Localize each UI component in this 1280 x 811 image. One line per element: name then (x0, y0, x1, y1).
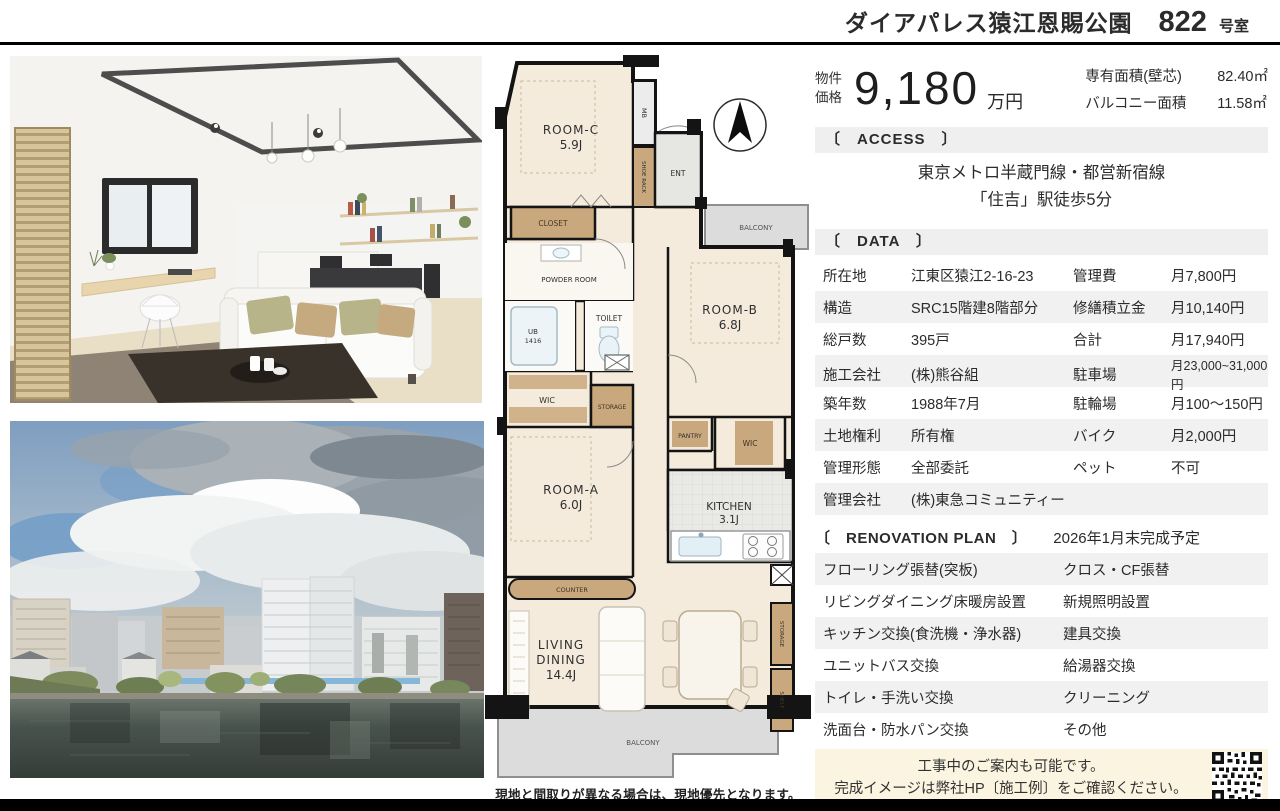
balcony-area-label: バルコニー面積 (1085, 91, 1217, 118)
north-arrow-icon (714, 99, 766, 151)
shoe-rack-label: SHOE RACK (640, 161, 646, 193)
listing-sheet: ダイアパレス猿江恩賜公園 822 号室 (0, 0, 1280, 811)
ent-label: ENT (671, 169, 686, 178)
living-dining-label: LIVING (538, 638, 584, 652)
exclusive-area-value: 82.40㎡ (1217, 64, 1268, 91)
powder-room-label: POWDER ROOM (541, 276, 596, 284)
table-row: 洗面台・防水パン交換その他 (815, 713, 1268, 745)
table-row: トイレ・手洗い交換クリーニング (815, 681, 1268, 713)
toilet-label: TOILET (595, 314, 623, 323)
exclusive-area-label: 専有面積(壁芯) (1085, 64, 1217, 91)
svg-text:DINING: DINING (536, 653, 586, 667)
access-heading: 〔 ACCESS 〕 (815, 127, 1268, 153)
room-number-suffix: 号室 (1219, 15, 1249, 36)
note-text: 工事中のご案内も可能です。 完成イメージは弊社HP〔施工例〕をご確認ください。 (815, 749, 1207, 800)
counter-label: COUNTER (556, 586, 588, 594)
table-row: 構造SRC15階建8階部分修繕積立金月10,140円 (815, 291, 1268, 323)
pantry-label: PANTRY (678, 433, 702, 440)
price-section: 物件 価格 9,180 万円 専有面積(壁芯) 82.40㎡ バルコニー面積 1… (815, 55, 1268, 127)
table-row: 施工会社(株)熊谷組駐車場月23,000~31,000円 (815, 355, 1268, 387)
data-heading: 〔 DATA 〕 (815, 229, 1268, 255)
view-photo (10, 421, 484, 778)
balcony-area-value: 11.58㎡ (1217, 91, 1268, 118)
price-unit: 万円 (987, 88, 1023, 127)
table-row: 管理会社(株)東急コミュニティー (815, 483, 1268, 515)
page-title: ダイアパレス猿江恩賜公園 822 号室 (845, 4, 1270, 39)
storage-mid-label: STORAGE (598, 404, 627, 411)
price-label: 物件 価格 (815, 55, 842, 127)
info-panel: 物件 価格 9,180 万円 専有面積(壁芯) 82.40㎡ バルコニー面積 1… (815, 55, 1268, 805)
table-row: 管理形態全部委託ペット不可 (815, 451, 1268, 483)
wic-left-label: WIC (539, 396, 555, 405)
shelf-label: SHELF (778, 691, 784, 708)
svg-text:14.4J: 14.4J (546, 668, 576, 682)
svg-text:5.9J: 5.9J (560, 138, 583, 152)
header-rule (0, 42, 1280, 45)
storage-right-label: STORAGE (778, 621, 784, 648)
room-b-label: ROOM-B (702, 303, 758, 317)
table-row: リビングダイニング床暖房設置新規照明設置 (815, 585, 1268, 617)
room-c-label: ROOM-C (543, 123, 599, 137)
interior-photo (10, 56, 482, 403)
area-info: 専有面積(壁芯) 82.40㎡ バルコニー面積 11.58㎡ (1085, 55, 1268, 127)
louver-door (15, 128, 70, 400)
renovation-heading: 〔 RENOVATION PLAN 〕 2026年1月末完成予定 (815, 521, 1268, 553)
renovation-completion-date: 2026年1月末完成予定 (1053, 527, 1200, 548)
data-table: 所在地江東区猿江2-16-23管理費月7,800円 構造SRC15階建8階部分修… (815, 255, 1268, 515)
table-row: フローリング張替(突板)クロス・CF張替 (815, 553, 1268, 585)
table-row: 所在地江東区猿江2-16-23管理費月7,800円 (815, 259, 1268, 291)
note-box: 工事中のご案内も可能です。 完成イメージは弊社HP〔施工例〕をご確認ください。 (815, 749, 1268, 805)
price-amount: 9,180 (854, 55, 979, 127)
svg-text:3.1J: 3.1J (719, 514, 739, 526)
room-a-label: ROOM-A (543, 483, 599, 497)
table-row: キッチン交換(食洗機・浄水器)建具交換 (815, 617, 1268, 649)
wic-right-label: WIC (743, 439, 758, 448)
qr-code (1212, 752, 1262, 802)
kitchen-label: KITCHEN (706, 501, 752, 513)
ub-label: UB (528, 328, 538, 336)
svg-text:1416: 1416 (525, 337, 542, 345)
table-row: ユニットバス交換給湯器交換 (815, 649, 1268, 681)
table-row: 総戸数395戸合計月17,940円 (815, 323, 1268, 355)
footer-bar (0, 799, 1280, 811)
balcony-top-label: BALCONY (739, 224, 773, 232)
svg-text:6.0J: 6.0J (560, 498, 583, 512)
svg-text:6.8J: 6.8J (719, 318, 742, 332)
balcony-bottom-label: BALCONY (626, 739, 660, 747)
building-name: ダイアパレス猿江恩賜公園 (845, 4, 1133, 38)
closet-label: CLOSET (538, 219, 568, 228)
access-text: 東京メトロ半蔵門線・都営新宿線 「住吉」駅徒歩5分 (815, 153, 1268, 229)
renovation-table: フローリング張替(突板)クロス・CF張替 リビングダイニング床暖房設置新規照明設… (815, 553, 1268, 745)
room-number: 822 (1159, 6, 1207, 39)
mb-label: MB (640, 108, 648, 118)
table-row: 土地権利所有権バイク月2,000円 (815, 419, 1268, 451)
floor-plan: ROOM-C 5.9J MB SHOE RACK ENT CLOSET BALC… (483, 55, 813, 783)
table-row: 築年数1988年7月駐輪場月100〜150円 (815, 387, 1268, 419)
